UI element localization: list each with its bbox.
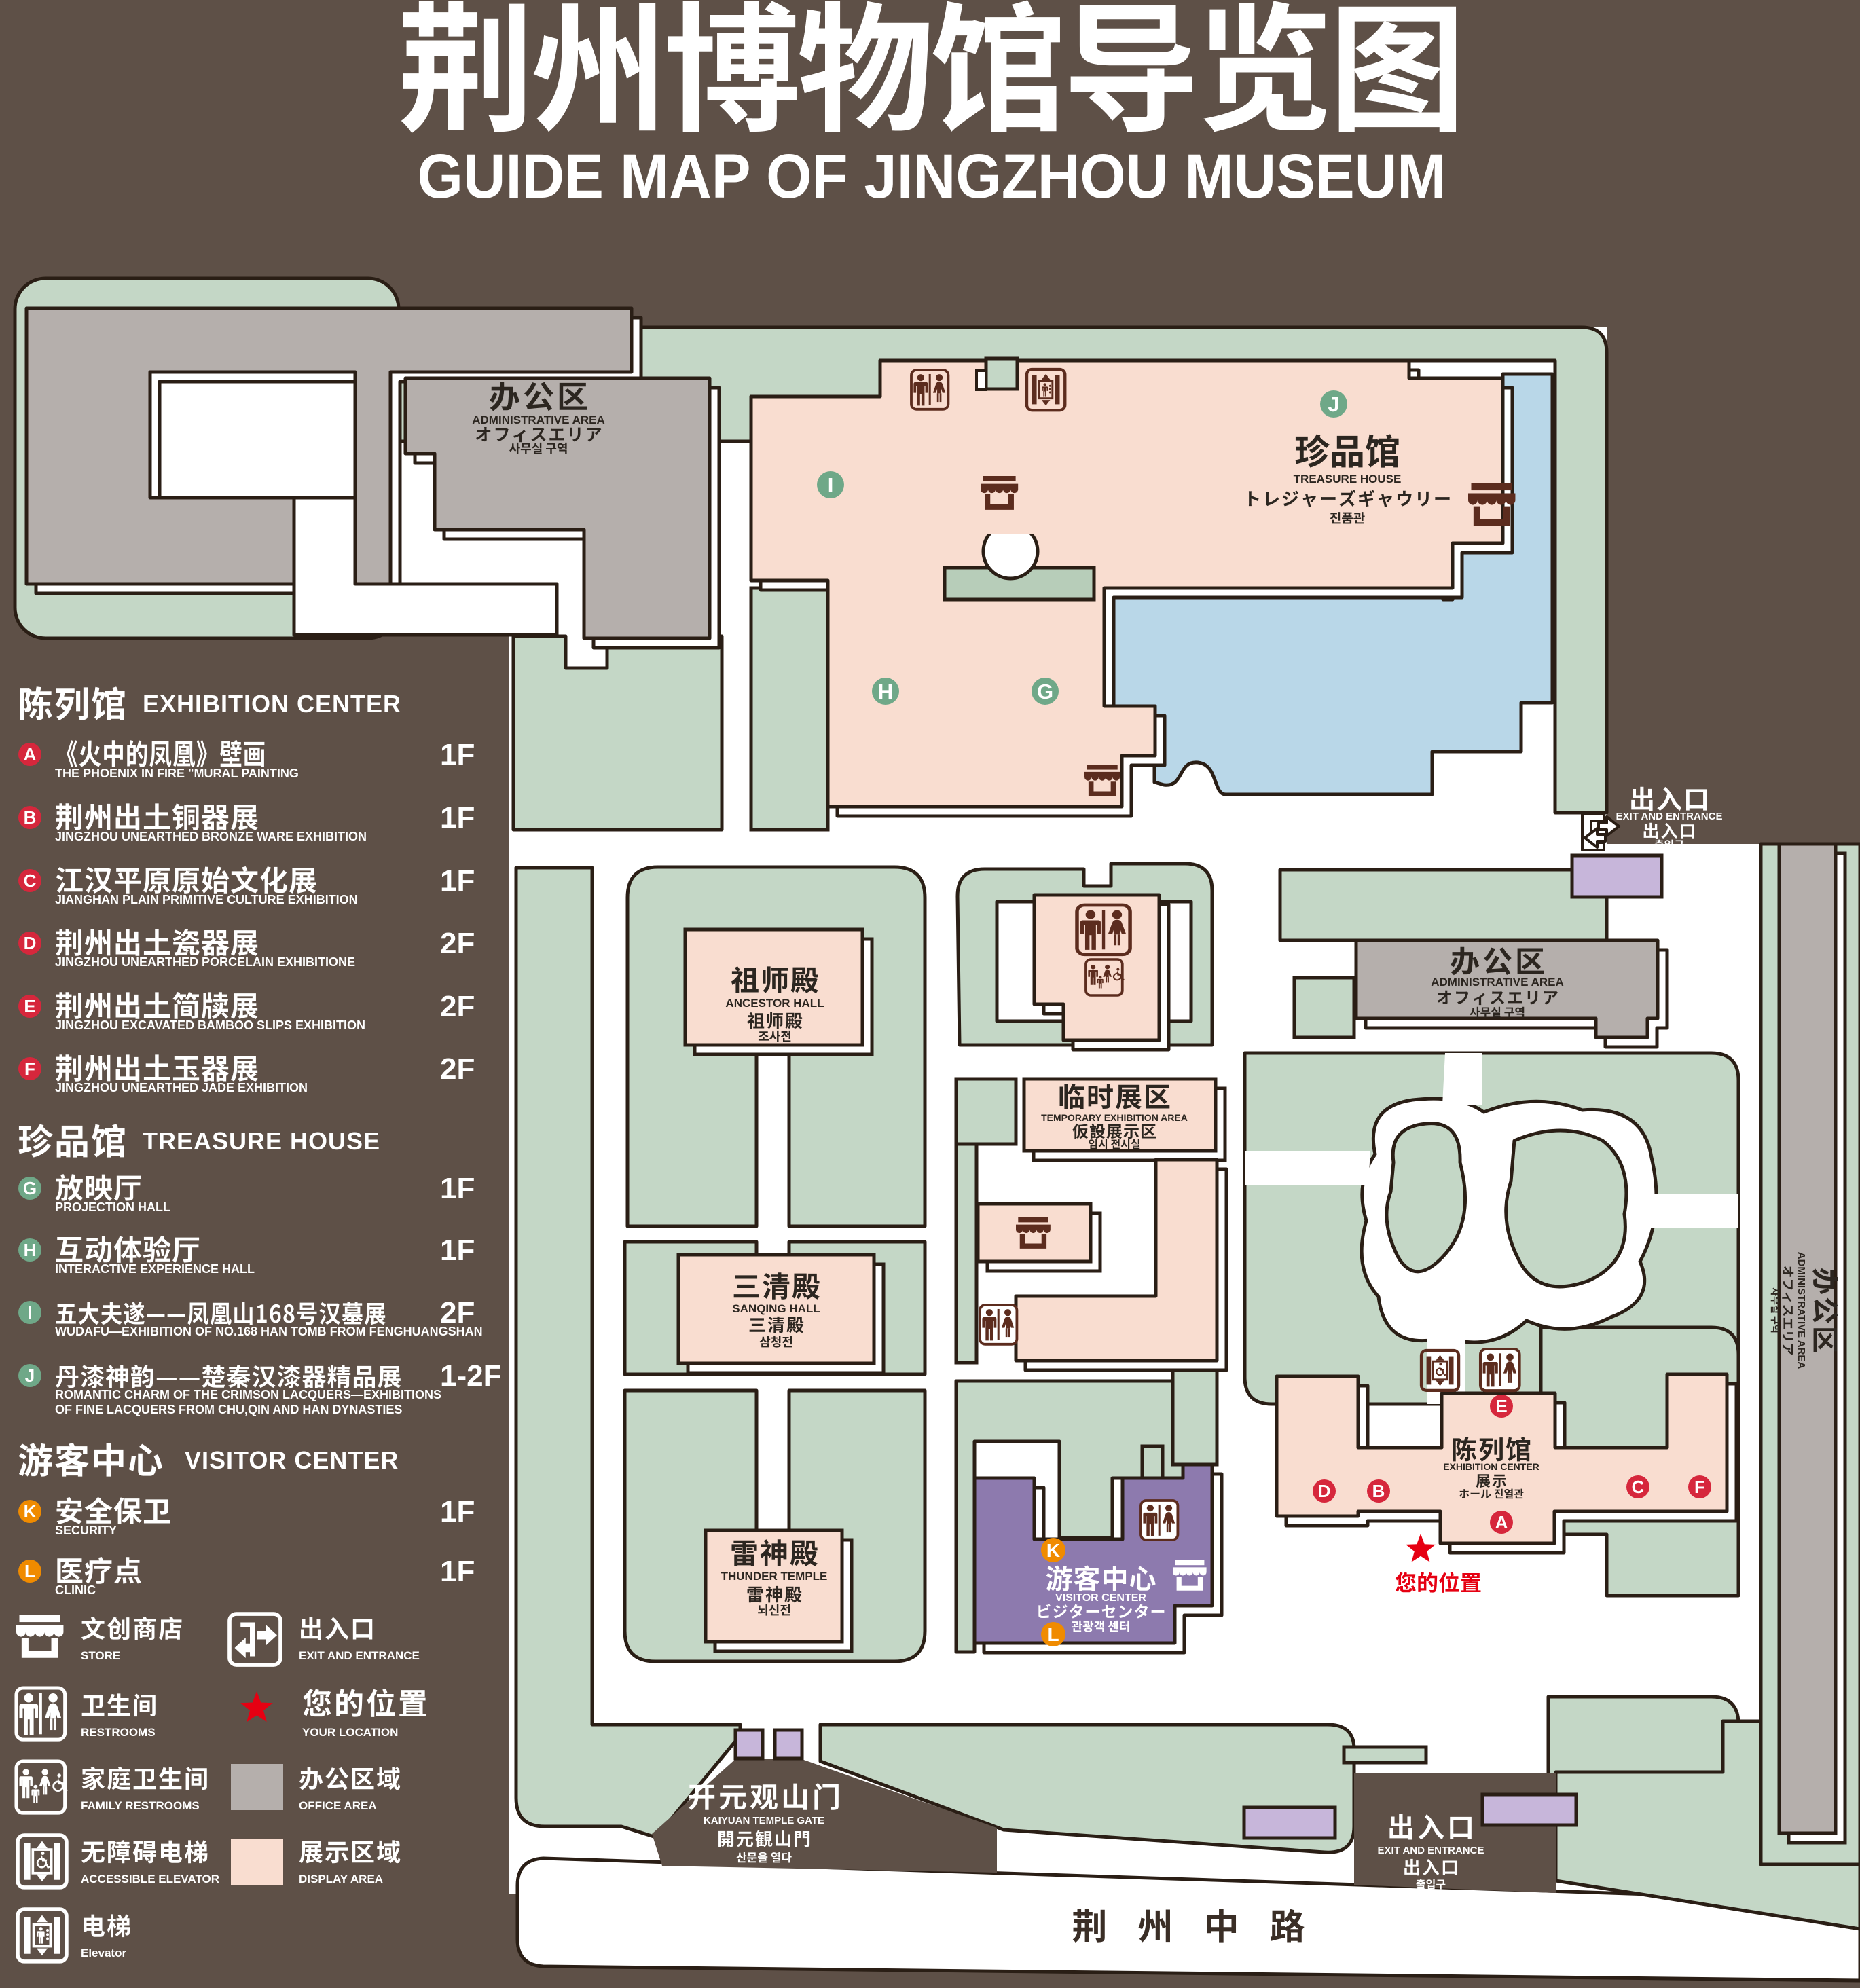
svg-text:OF FINE LACQUERS FROM CHU,QIN: OF FINE LACQUERS FROM CHU,QIN AND HAN DY… [55, 1403, 402, 1416]
svg-text:G: G [1037, 680, 1053, 703]
svg-text:FAMILY RESTROOMS: FAMILY RESTROOMS [81, 1799, 200, 1812]
svg-text:I: I [828, 473, 834, 497]
svg-text:1-2F: 1-2F [440, 1359, 501, 1393]
svg-text:I: I [27, 1302, 32, 1323]
svg-text:ANCESTOR HALL: ANCESTOR HALL [725, 997, 824, 1010]
svg-text:JINGZHOU UNEARTHED BRONZE WARE: JINGZHOU UNEARTHED BRONZE WARE EXHIBITIO… [55, 830, 367, 843]
svg-text:JINGZHOU UNEARTHED JADE EXHIBI: JINGZHOU UNEARTHED JADE EXHIBITION [55, 1081, 308, 1094]
svg-text:A: A [24, 744, 37, 765]
svg-text:ACCESSIBLE ELEVATOR: ACCESSIBLE ELEVATOR [81, 1873, 219, 1885]
svg-text:OFFICE AREA: OFFICE AREA [299, 1799, 377, 1812]
svg-text:E: E [1495, 1396, 1507, 1416]
svg-text:2F: 2F [440, 990, 475, 1023]
svg-text:G: G [23, 1178, 37, 1198]
svg-text:1F: 1F [440, 1555, 475, 1588]
svg-text:TEMPORARY EXHIBITION AREA: TEMPORARY EXHIBITION AREA [1041, 1112, 1188, 1123]
svg-text:VISITOR CENTER: VISITOR CENTER [1055, 1592, 1146, 1604]
svg-text:C: C [1632, 1477, 1645, 1497]
svg-text:WUDAFU—EXHIBITION OF NO.168 HA: WUDAFU—EXHIBITION OF NO.168 HAN TOMB FRO… [55, 1325, 483, 1338]
svg-text:H: H [24, 1240, 37, 1260]
svg-text:RESTROOMS: RESTROOMS [81, 1726, 156, 1739]
svg-text:H: H [878, 680, 893, 703]
svg-text:D: D [1318, 1481, 1331, 1501]
svg-text:B: B [1372, 1481, 1385, 1501]
svg-text:C: C [24, 870, 37, 891]
svg-text:TREASURE HOUSE: TREASURE HOUSE [143, 1127, 380, 1155]
svg-text:GUIDE MAP OF JINGZHOU MUSEUM: GUIDE MAP OF JINGZHOU MUSEUM [418, 142, 1446, 211]
svg-text:STORE: STORE [81, 1649, 120, 1662]
svg-text:EXIT AND ENTRANCE: EXIT AND ENTRANCE [299, 1649, 420, 1662]
svg-text:D: D [24, 933, 37, 953]
svg-text:2F: 2F [440, 1296, 475, 1329]
svg-text:ADMINISTRATIVE AREA: ADMINISTRATIVE AREA [472, 413, 605, 426]
svg-text:SANQING HALL: SANQING HALL [732, 1302, 820, 1315]
svg-text:JIANGHAN PLAIN PRIMITIVE CULTU: JIANGHAN PLAIN PRIMITIVE CULTURE EXHIBIT… [55, 893, 358, 906]
svg-text:ROMANTIC CHARM OF THE CRIMSON: ROMANTIC CHARM OF THE CRIMSON LACQUERS—E… [55, 1388, 441, 1401]
svg-text:YOUR LOCATION: YOUR LOCATION [302, 1726, 398, 1739]
svg-text:JINGZHOU EXCAVATED BAMBOO SLIP: JINGZHOU EXCAVATED BAMBOO SLIPS EXHIBITI… [55, 1018, 365, 1032]
svg-text:L: L [1047, 1624, 1059, 1645]
svg-text:EXHIBITION CENTER: EXHIBITION CENTER [1443, 1461, 1539, 1472]
svg-text:2F: 2F [440, 1052, 475, 1086]
svg-text:ADMINISTRATIVE AREA: ADMINISTRATIVE AREA [1431, 976, 1564, 989]
svg-text:2F: 2F [440, 927, 475, 960]
svg-text:E: E [24, 996, 35, 1016]
svg-text:Elevator: Elevator [81, 1947, 126, 1959]
svg-text:DISPLAY AREA: DISPLAY AREA [299, 1873, 383, 1885]
svg-text:F: F [1694, 1477, 1705, 1497]
svg-text:1F: 1F [440, 738, 475, 771]
svg-text:K: K [24, 1501, 37, 1522]
svg-text:TREASURE HOUSE: TREASURE HOUSE [1294, 473, 1402, 485]
svg-text:THE PHOENIX IN FIRE "MURAL PAI: THE PHOENIX IN FIRE "MURAL PAINTING [55, 767, 299, 780]
svg-text:THUNDER TEMPLE: THUNDER TEMPLE [721, 1570, 828, 1583]
svg-text:A: A [1495, 1512, 1508, 1532]
svg-text:PROJECTION HALL: PROJECTION HALL [55, 1200, 170, 1214]
svg-text:SECURITY: SECURITY [55, 1524, 117, 1537]
svg-text:F: F [24, 1059, 35, 1079]
svg-text:INTERACTIVE EXPERIENCE HALL: INTERACTIVE EXPERIENCE HALL [55, 1262, 255, 1276]
svg-text:ADMINISTRATIVE AREA: ADMINISTRATIVE AREA [1795, 1252, 1807, 1369]
svg-text:EXIT AND ENTRANCE: EXIT AND ENTRANCE [1378, 1845, 1484, 1856]
svg-text:KAIYUAN TEMPLE GATE: KAIYUAN TEMPLE GATE [704, 1815, 824, 1826]
svg-text:CLINIC: CLINIC [55, 1583, 96, 1597]
svg-text:L: L [24, 1561, 35, 1581]
svg-text:J: J [1328, 392, 1339, 416]
svg-text:1F: 1F [440, 1495, 475, 1528]
svg-text:1F: 1F [440, 864, 475, 898]
svg-text:1F: 1F [440, 801, 475, 834]
svg-text:1F: 1F [440, 1172, 475, 1205]
svg-text:1F: 1F [440, 1234, 475, 1267]
svg-text:K: K [1046, 1540, 1060, 1561]
svg-text:JINGZHOU UNEARTHED PORCELAIN E: JINGZHOU UNEARTHED PORCELAIN EXHIBITIONE [55, 955, 355, 969]
svg-text:VISITOR CENTER: VISITOR CENTER [185, 1446, 399, 1474]
svg-text:EXIT AND ENTRANCE: EXIT AND ENTRANCE [1616, 811, 1723, 822]
svg-text:J: J [25, 1365, 35, 1386]
svg-text:EXHIBITION CENTER: EXHIBITION CENTER [143, 690, 401, 718]
svg-text:B: B [24, 807, 37, 828]
